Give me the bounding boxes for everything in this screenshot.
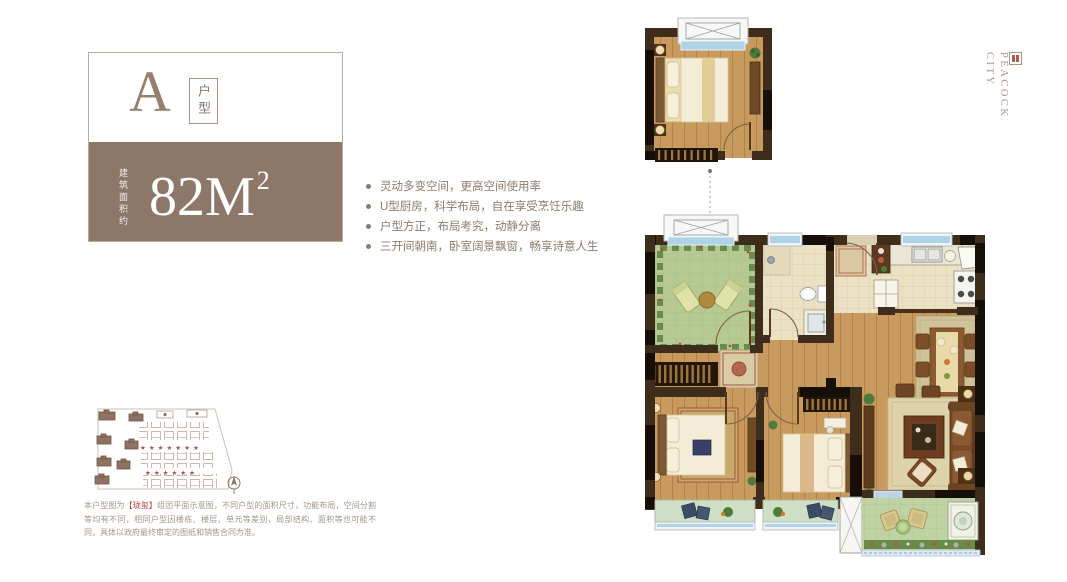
floor-plan [640,15,990,567]
feature-item: 灵动多变空间，更高空间使用率 [366,176,599,196]
sink-vanity [804,310,828,336]
feature-text: 三开间朝南，卧室阔景飘窗，畅享诗意人生 [380,238,599,254]
feature-item: U型厨房，科学布局，自在享受烹饪乐趣 [366,196,599,216]
floorplan-poster: A 户型 建筑面积约 82M2 灵动多变空间，更高空间使用率 U型厨房，科学布局… [0,0,1067,582]
feature-text: 户型方正，布局考究，动静分离 [380,218,541,234]
bed [783,434,853,492]
hall-rug [720,350,758,388]
area-value: 82M2 [149,169,270,225]
bullet-icon [366,204,371,209]
bullet-icon [366,224,371,229]
site-star-row: ★★★★★★ [145,469,198,477]
plant [769,421,778,430]
plant [748,477,757,486]
compass-icon [228,476,240,494]
brand-name: PEACOCK CITY [982,52,1010,147]
type-card-top: A 户型 [89,53,342,142]
disclaimer: 本户型图为【珑玺】组团平面示意图，不同户型的面积尺寸，功能布局，空间分割等均有不… [84,499,376,540]
area-number: 82M [149,166,255,228]
brand-line2: CITY [982,52,996,147]
washing-machine [948,502,978,540]
detached-bedroom [645,18,772,162]
bed [658,415,725,475]
round-table [699,292,715,308]
area-prefix-label: 建筑面积约 [117,168,130,228]
console [750,62,760,114]
feature-text: 灵动多变空间，更高空间使用率 [380,178,541,194]
kitchen-threshold [895,309,957,313]
site-plan: ★★★★★★★ ★★★★★★ [85,398,245,500]
bay-window-1 [655,500,755,530]
peacock-city-logo [1009,52,1022,65]
main-floor [645,215,985,556]
tv-console [864,406,874,488]
tv-panel [748,418,757,472]
kitchen-sink [912,247,942,262]
brand-line1: PEACOCK [996,52,1010,147]
bullet-icon [366,184,371,189]
type-card: A 户型 建筑面积约 82M2 [88,52,343,242]
lamp [656,126,665,135]
disclaimer-project-name: 【珑玺】 [125,501,157,510]
flower-bed [864,540,975,549]
plant [864,394,875,405]
bathroom-window [768,233,802,246]
kitchen [872,243,980,313]
feature-item: 户型方正，布局考究，动静分离 [366,216,599,236]
garden-bay-window [664,215,738,245]
entry-hall [834,243,878,313]
area-band: 建筑面积约 82M2 [89,142,342,241]
area-superscript: 2 [257,166,270,195]
bay-window [678,18,748,50]
balcony-slider [874,491,902,499]
type-label: 户型 [189,78,218,124]
feature-item: 三开间朝南，卧室阔景飘窗，畅享诗意人生 [366,236,599,256]
balcony [862,498,980,556]
feature-text: U型厨房，科学布局，自在享受烹饪乐趣 [380,198,584,214]
stool [896,384,914,397]
coffee-table [904,416,944,458]
kitchen-window [901,233,952,246]
site-block-grid [141,452,213,468]
stool [922,386,940,398]
vanity [824,418,846,428]
balcony-railing [862,550,980,556]
garden-room [655,243,757,352]
balcony-railing [655,148,718,162]
plant [750,48,761,59]
site-star-row: ★★★★★★★ [140,444,202,452]
kettle [945,251,956,262]
disclaimer-prefix: 本户型图为 [84,501,125,510]
feature-list: 灵动多变空间，更高空间使用率 U型厨房，科学布局，自在享受烹饪乐趣 户型方正，布… [366,176,599,256]
bay-window-2 [763,500,838,530]
entry-rug [836,246,866,276]
air-conditioner [840,497,862,553]
bed [656,58,728,122]
wardrobe [803,397,853,412]
type-letter: A [129,63,171,121]
site-block-grid [139,422,209,440]
lamp [656,46,665,55]
bullet-icon [366,244,371,249]
stove [954,271,978,303]
hall-bench [650,362,718,386]
